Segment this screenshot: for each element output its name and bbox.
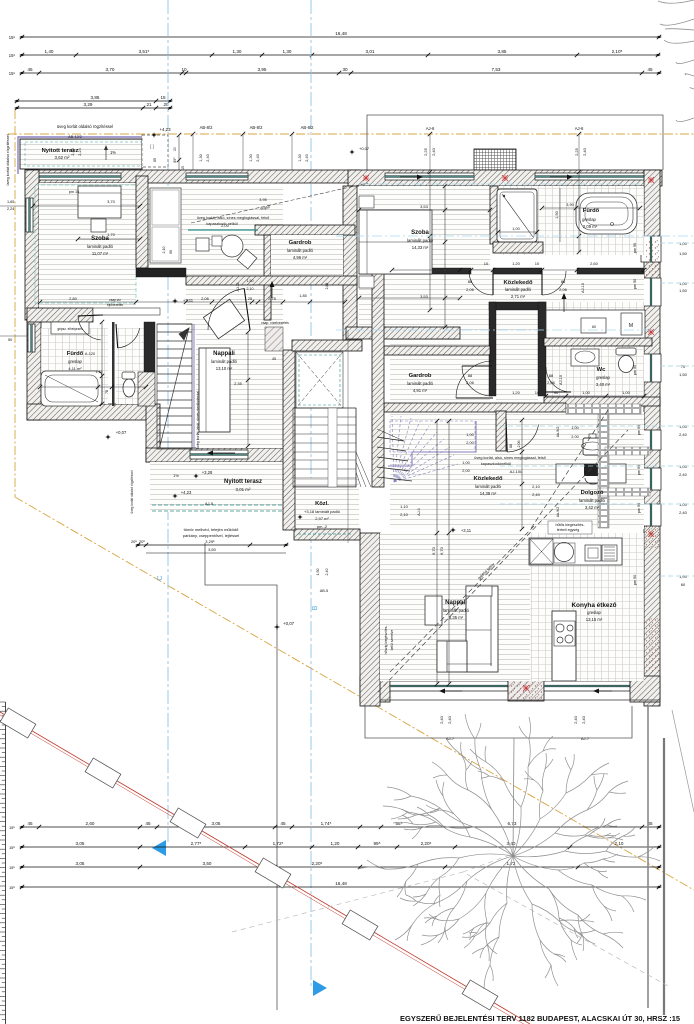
svg-text:2,40: 2,40 [581, 715, 586, 724]
svg-text:7,53: 7,53 [492, 67, 501, 72]
svg-text:1,72⁵: 1,72⁵ [273, 841, 284, 846]
svg-text:2,10: 2,10 [615, 841, 624, 846]
svg-text:11,07 m²: 11,07 m² [92, 251, 109, 256]
svg-text:1,00: 1,00 [571, 426, 578, 430]
svg-text:1,20: 1,20 [331, 841, 340, 846]
svg-text:+4,23: +4,23 [181, 490, 192, 495]
svg-text:laminált padló: laminált padló [211, 359, 238, 364]
svg-text:+4,23: +4,23 [159, 127, 171, 132]
svg-text:AJ-3: AJ-3 [417, 508, 421, 515]
svg-text:1,00: 1,00 [679, 241, 688, 246]
svg-text:2,06: 2,06 [559, 287, 568, 292]
svg-text:10: 10 [535, 390, 540, 395]
svg-text:laminált padló: laminált padló [475, 484, 502, 489]
svg-text:88: 88 [509, 444, 513, 448]
svg-text:Dolgozó: Dolgozó [581, 490, 604, 496]
svg-text:tömör mellvéd, tetején működő: tömör mellvéd, tetején működő [184, 527, 239, 532]
svg-text:2,60: 2,60 [590, 261, 599, 266]
svg-text:EGYSZERŰ BEJELENTÉSI TERV 1182: EGYSZERŰ BEJELENTÉSI TERV 1182 BUDAPEST,… [400, 1014, 680, 1023]
svg-text:15⁵: 15⁵ [9, 825, 15, 830]
svg-text:10: 10 [484, 261, 489, 266]
svg-text:pm -2: pm -2 [317, 524, 328, 529]
svg-text:1,50: 1,50 [316, 569, 320, 576]
svg-text:1,30: 1,30 [249, 154, 253, 161]
svg-text:1,00: 1,00 [462, 461, 469, 465]
svg-text:Ab-9/2: Ab-9/2 [556, 507, 560, 518]
svg-text:1,50: 1,50 [247, 279, 254, 283]
svg-text:AJ-6: AJ-6 [575, 126, 584, 131]
svg-text:AB-8/2: AB-8/2 [200, 125, 213, 130]
svg-text:10: 10 [181, 67, 187, 72]
svg-text:AB-8/2: AB-8/2 [250, 125, 263, 130]
svg-text:greslap: greslap [587, 610, 601, 615]
svg-text:2,24: 2,24 [7, 207, 14, 211]
svg-text:Közlekedő: Közlekedő [504, 280, 533, 286]
svg-text:+3,11: +3,11 [461, 528, 472, 533]
svg-text:párkány, cseppentővel, lejtéss: párkány, cseppentővel, lejtéssel [183, 533, 240, 538]
svg-text:3,62 m²: 3,62 m² [55, 155, 70, 160]
svg-text:1,00: 1,00 [622, 390, 631, 395]
svg-text:2,40: 2,40 [325, 569, 329, 576]
svg-text:Gardrob: Gardrob [409, 373, 432, 379]
svg-text:laminált padló: laminált padló [407, 238, 434, 243]
svg-text:45: 45 [27, 67, 33, 72]
svg-text:3,05: 3,05 [76, 841, 85, 846]
svg-text:1%: 1% [110, 150, 116, 155]
svg-text:pm 90: pm 90 [633, 279, 637, 290]
svg-text:pm 90: pm 90 [633, 575, 637, 586]
svg-text:90: 90 [169, 250, 173, 254]
svg-text:AB-8/2: AB-8/2 [301, 125, 314, 130]
svg-text:2,00: 2,00 [221, 223, 230, 228]
svg-text:laminált padló: laminált padló [87, 244, 114, 249]
svg-text:2,40: 2,40 [206, 154, 210, 161]
svg-text:1,00: 1,00 [582, 390, 591, 395]
svg-text:1,85: 1,85 [299, 294, 306, 298]
svg-text:2,24: 2,24 [78, 148, 82, 155]
svg-text:hőszig kiegészítés-: hőszig kiegészítés- [384, 626, 388, 655]
svg-text:1,10: 1,10 [400, 504, 409, 509]
svg-text:1,40: 1,40 [45, 49, 54, 54]
svg-text:15⁵: 15⁵ [9, 865, 15, 870]
svg-text:Nappali: Nappali [445, 600, 467, 606]
svg-text:15⁵: 15⁵ [9, 71, 16, 76]
svg-text:60: 60 [592, 325, 596, 329]
svg-text:1,30: 1,30 [233, 49, 242, 54]
svg-text:16,48: 16,48 [335, 31, 347, 36]
svg-text:2,10⁵: 2,10⁵ [612, 49, 623, 54]
svg-text:+0,07: +0,07 [359, 146, 370, 151]
svg-text:6,35 m²: 6,35 m² [449, 615, 464, 620]
svg-text:3,53: 3,53 [420, 294, 429, 299]
svg-text:88: 88 [549, 373, 554, 378]
svg-text:laminált padló: laminált padló [443, 608, 470, 613]
svg-text:15⁵: 15⁵ [9, 885, 15, 890]
svg-text:üveg korlát, alsó, sínes megfo: üveg korlát, alsó, sínes megfogással, fe… [474, 456, 546, 460]
svg-text:21: 21 [146, 102, 152, 107]
svg-text:45: 45 [280, 821, 286, 826]
svg-text:2,40: 2,40 [679, 432, 688, 437]
svg-text:45: 45 [647, 67, 653, 72]
svg-text:1,00: 1,00 [512, 227, 519, 231]
svg-text:1,65: 1,65 [7, 200, 14, 204]
svg-text:88: 88 [561, 279, 566, 284]
svg-text:3,29: 3,29 [84, 102, 93, 107]
svg-text:3,85: 3,85 [91, 95, 100, 100]
svg-text:2,20⁵: 2,20⁵ [312, 861, 323, 866]
svg-text:99⁵: 99⁵ [373, 841, 380, 846]
svg-text:üveg korlát oldalsó rögzítésse: üveg korlát oldalsó rögzítéssel [57, 124, 113, 129]
svg-text:Gardrob: Gardrob [289, 240, 312, 246]
svg-text:2,25: 2,25 [423, 147, 428, 156]
svg-text:2,40: 2,40 [679, 510, 688, 515]
svg-text:+0,07: +0,07 [283, 621, 295, 626]
svg-text:4,91 m²: 4,91 m² [413, 388, 428, 393]
svg-text:1,50: 1,50 [679, 372, 688, 377]
svg-text:3,85: 3,85 [498, 49, 507, 54]
svg-text:2,06: 2,06 [466, 380, 475, 385]
svg-text:2,40: 2,40 [532, 492, 541, 497]
svg-text:90: 90 [554, 390, 559, 395]
svg-text:Közl.: Közl. [315, 501, 329, 507]
svg-text:10: 10 [535, 261, 540, 266]
svg-text:2,00: 2,00 [466, 441, 473, 445]
svg-text:2,77⁵: 2,77⁵ [191, 841, 202, 846]
svg-text:2,06: 2,06 [547, 380, 556, 385]
svg-text:Közlekedő: Közlekedő [474, 476, 503, 482]
svg-text:hűtős kiegészítés-: hűtős kiegészítés- [556, 523, 586, 527]
svg-text:16,48: 16,48 [335, 881, 347, 886]
svg-text:laminált padló: laminált padló [287, 248, 314, 253]
svg-text:1,15: 1,15 [96, 370, 103, 374]
svg-text:14,33 m²: 14,33 m² [412, 245, 429, 250]
svg-text:1,00: 1,00 [679, 464, 688, 469]
svg-text:20⁵: 20⁵ [131, 539, 137, 544]
svg-text:20⁵: 20⁵ [139, 539, 145, 544]
svg-text:belül szerelve: belül szerelve [390, 630, 394, 651]
svg-text:1,00: 1,00 [679, 502, 688, 507]
svg-text:15⁵: 15⁵ [9, 35, 16, 40]
svg-text:3,95: 3,95 [259, 198, 266, 202]
svg-text:laminált padló: laminált padló [505, 287, 532, 292]
svg-text:88: 88 [468, 279, 473, 284]
svg-text:1,74⁵: 1,74⁵ [321, 821, 332, 826]
svg-text:AJ-10: AJ-10 [581, 283, 585, 293]
svg-text:2,09 m²: 2,09 m² [583, 224, 598, 229]
svg-text:3,01 m²: 3,01 m² [236, 487, 251, 492]
svg-text:Fürdő: Fürdő [67, 351, 84, 357]
svg-text:M: M [629, 323, 633, 329]
svg-text:85⁰: 85⁰ [173, 157, 177, 163]
svg-text:AJ-12: AJ-12 [236, 282, 240, 291]
svg-text:B: B [312, 605, 319, 610]
svg-text:1,90: 1,90 [679, 574, 688, 579]
svg-text:2,71 m²: 2,71 m² [511, 294, 526, 299]
svg-text:pm 15: pm 15 [69, 190, 80, 194]
svg-text:2,40: 2,40 [71, 148, 75, 155]
svg-text:2,40: 2,40 [573, 715, 578, 724]
svg-text:2,10: 2,10 [162, 247, 166, 254]
svg-text:45: 45 [145, 821, 151, 826]
svg-text:2,40: 2,40 [447, 715, 452, 724]
svg-text:AB-5: AB-5 [320, 589, 328, 593]
svg-text:15⁵: 15⁵ [9, 845, 15, 850]
svg-text:13,10 m²: 13,10 m² [216, 366, 233, 371]
svg-text:Nyitott terasz: Nyitott terasz [224, 479, 262, 485]
svg-text:2,20⁵: 2,20⁵ [421, 841, 432, 846]
svg-text:6,73: 6,73 [508, 821, 517, 826]
svg-text:60: 60 [681, 582, 686, 587]
svg-text:1,30: 1,30 [298, 154, 302, 161]
svg-text:Konyha étkező: Konyha étkező [571, 602, 616, 609]
svg-text:25: 25 [248, 296, 253, 301]
svg-text:AJ-5: AJ-5 [205, 501, 214, 506]
svg-text:15: 15 [181, 166, 185, 170]
svg-text:greslap: greslap [582, 217, 596, 222]
svg-text:3,05: 3,05 [76, 861, 85, 866]
svg-text:1,50: 1,50 [679, 251, 688, 256]
svg-text:2,10: 2,10 [532, 484, 541, 489]
svg-text:3,90: 3,90 [566, 203, 573, 207]
svg-text:1,00: 1,00 [679, 424, 688, 429]
svg-text:88: 88 [468, 373, 473, 378]
svg-text:greslap: greslap [596, 375, 610, 380]
svg-text:Ab-9/2: Ab-9/2 [556, 427, 560, 438]
svg-text:20: 20 [173, 147, 177, 151]
svg-text:3,50: 3,50 [203, 861, 212, 866]
svg-text:85: 85 [153, 158, 157, 162]
svg-text:AJ-10: AJ-10 [559, 375, 563, 385]
svg-text:pm 90: pm 90 [633, 365, 637, 376]
svg-text:3,70: 3,70 [106, 67, 115, 72]
svg-text:2,00: 2,00 [571, 435, 578, 439]
svg-text:2,75: 2,75 [268, 296, 277, 301]
svg-text:4,96 m²: 4,96 m² [293, 255, 308, 260]
svg-text:AJ-10ü: AJ-10ü [510, 469, 523, 474]
svg-text:pm 90: pm 90 [633, 243, 637, 254]
svg-text:45: 45 [272, 357, 276, 361]
svg-text:kapaszkodónélkül: kapaszkodónélkül [481, 462, 511, 466]
svg-text:1,20: 1,20 [512, 261, 521, 266]
svg-text:ejtővezeték: ejtővezeték [107, 303, 124, 307]
svg-text:üveg korlát, alsó, sínes megfo: üveg korlát, alsó, sínes megfoglással, f… [197, 216, 269, 220]
svg-text:1,00: 1,00 [679, 281, 688, 286]
svg-text:2,40: 2,40 [582, 147, 587, 156]
svg-text:2,25: 2,25 [574, 147, 579, 156]
svg-text:45: 45 [27, 821, 33, 826]
svg-text:2,06: 2,06 [466, 287, 475, 292]
svg-text:AJ-6: AJ-6 [426, 126, 435, 131]
svg-text:15⁵: 15⁵ [9, 53, 16, 58]
svg-text:2,35: 2,35 [234, 381, 243, 386]
svg-text:3,51⁵: 3,51⁵ [139, 49, 150, 54]
svg-text:14,38 m²: 14,38 m² [480, 491, 497, 496]
svg-text:C: C [157, 575, 164, 580]
svg-text:3,42 m²: 3,42 m² [585, 505, 600, 510]
svg-text:laminált padló: laminált padló [407, 381, 434, 386]
svg-text:+0,07: +0,07 [116, 430, 127, 435]
svg-text:Nappali: Nappali [213, 351, 235, 357]
svg-text:üveg korlát oldalsó rögzítésse: üveg korlát oldalsó rögzítéssel [6, 134, 10, 185]
svg-text:2,80: 2,80 [69, 296, 78, 301]
svg-text:13,15 m²: 13,15 m² [586, 617, 603, 622]
svg-text:2,40: 2,40 [305, 154, 309, 161]
svg-text:2,97 m²: 2,97 m² [315, 516, 329, 521]
svg-text:Wc: Wc [597, 367, 606, 373]
svg-text:6,70: 6,70 [431, 546, 436, 555]
svg-text:gépsz. elhelyezés: gépsz. elhelyezés [57, 327, 83, 331]
svg-text:3,40 m²: 3,40 m² [596, 382, 611, 387]
svg-text:+3,18 laminált padló: +3,18 laminált padló [304, 509, 341, 514]
svg-text:2,40: 2,40 [431, 147, 436, 156]
svg-text:2,00: 2,00 [462, 469, 469, 473]
svg-text:1,00: 1,00 [466, 433, 473, 437]
svg-text:laminált padló: laminált padló [579, 498, 606, 503]
svg-text:50: 50 [8, 338, 12, 342]
svg-text:+3,28: +3,28 [202, 470, 213, 475]
svg-text:térbeli egység: térbeli egység [557, 528, 579, 532]
svg-text:2,06: 2,06 [201, 296, 210, 301]
svg-text:1,50: 1,50 [679, 288, 688, 293]
svg-text:1,50: 1,50 [555, 211, 559, 218]
svg-text:3,29⁵: 3,29⁵ [205, 539, 215, 544]
svg-text:2,10: 2,10 [247, 287, 254, 291]
svg-text:3,70: 3,70 [107, 199, 116, 204]
svg-text:2,40: 2,40 [439, 715, 444, 724]
svg-text:csap. vízelvezetés: csap. vízelvezetés [261, 321, 289, 325]
svg-text:30: 30 [342, 67, 348, 72]
svg-text:Szoba: Szoba [411, 230, 429, 236]
svg-text:2,10: 2,10 [400, 512, 409, 517]
svg-text:A-120: A-120 [85, 352, 95, 356]
svg-text:78: 78 [105, 390, 109, 394]
svg-text:70: 70 [681, 364, 686, 369]
svg-text:3,95: 3,95 [258, 67, 267, 72]
svg-text:üveg korlát oldalsó rögzítésse: üveg korlát oldalsó rögzítéssel [130, 470, 134, 513]
svg-text:Szoba: Szoba [91, 236, 109, 242]
svg-text:+3,11: +3,11 [183, 298, 194, 303]
svg-text:3,01: 3,01 [366, 49, 375, 54]
svg-text:15: 15 [160, 95, 166, 100]
svg-text:2,88: 2,88 [325, 283, 329, 290]
svg-text:1,20: 1,20 [512, 390, 521, 395]
svg-text:2,06: 2,06 [517, 441, 521, 448]
svg-text:greslap: greslap [68, 359, 82, 364]
svg-text:3,05: 3,05 [212, 821, 221, 826]
svg-text:3,40: 3,40 [507, 841, 516, 846]
svg-text:4,11 m²: 4,11 m² [68, 366, 82, 371]
svg-text:2,40: 2,40 [679, 472, 688, 477]
svg-text:6,70: 6,70 [439, 546, 444, 555]
svg-text:2,40: 2,40 [256, 154, 260, 161]
svg-text:AJ-7: AJ-7 [581, 736, 590, 741]
svg-text:2,60: 2,60 [86, 821, 95, 826]
svg-text:1,30: 1,30 [283, 49, 292, 54]
svg-text:[ ]: [ ] [150, 144, 154, 149]
svg-text:Fürdő: Fürdő [583, 208, 600, 214]
svg-text:3,50: 3,50 [208, 547, 217, 552]
svg-text:1%: 1% [173, 473, 179, 478]
svg-text:AB-12/2: AB-12/2 [68, 135, 82, 139]
svg-text:csap.víz: csap.víz [109, 298, 121, 302]
svg-text:1,30: 1,30 [199, 154, 203, 161]
svg-text:3,53: 3,53 [420, 204, 429, 209]
